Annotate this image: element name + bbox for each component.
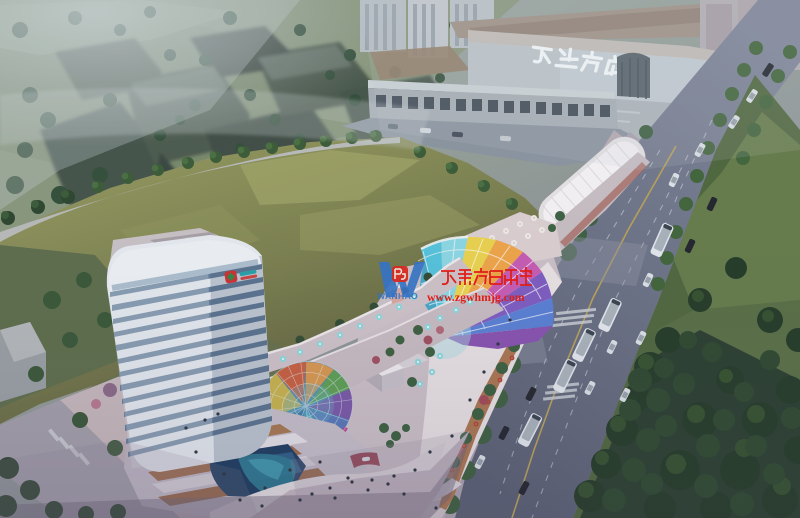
svg-text:www.zgwhmjg.com: www.zgwhmjg.com: [427, 290, 525, 304]
svg-text:WANHAO: WANHAO: [377, 291, 418, 301]
